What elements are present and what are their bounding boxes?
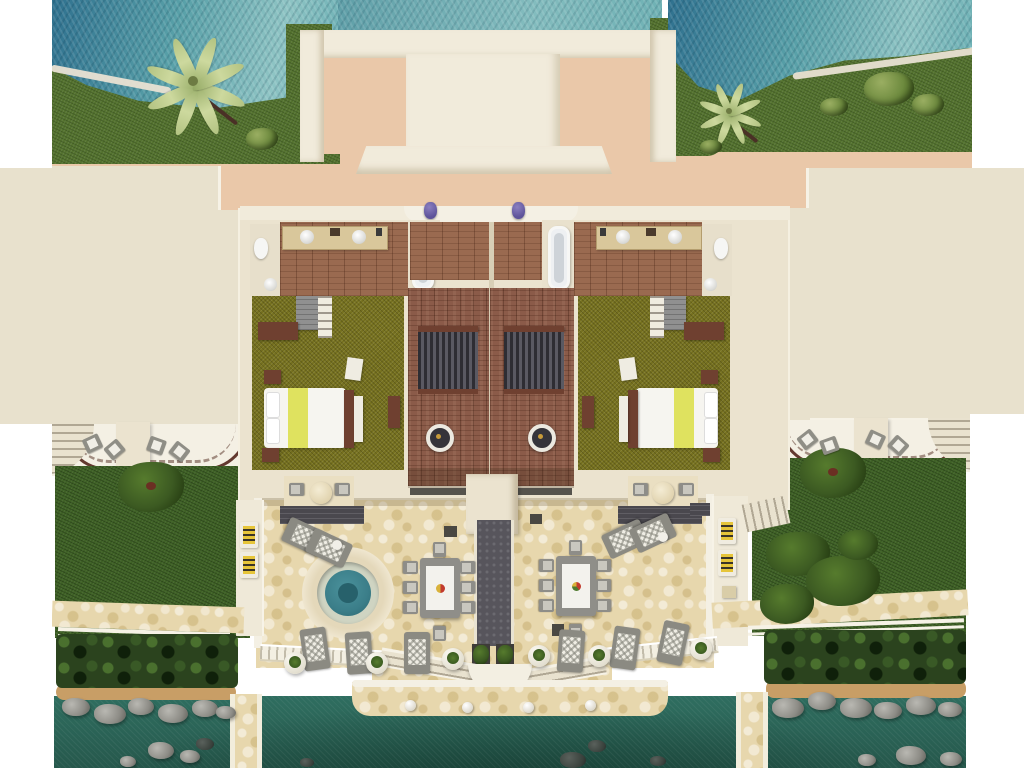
dining-chair: [460, 581, 475, 594]
water-rock: [196, 738, 214, 750]
dining-chair: [569, 540, 582, 555]
luggage-bench-left: [345, 357, 364, 381]
dock-bollard: [462, 702, 473, 713]
vanity-accessory: [376, 228, 382, 236]
bathtub-right: [548, 226, 570, 290]
dock-bollard: [405, 700, 416, 711]
ball-planter: [284, 652, 306, 674]
bed-bench-left: [354, 396, 363, 442]
sun-lounger: [404, 632, 430, 674]
shore-rock-right: [858, 754, 876, 766]
dining-chair: [433, 542, 446, 557]
bed-footboard-left: [344, 390, 354, 448]
bed-yellow-runner-left: [288, 388, 308, 448]
shore-rock-right: [874, 702, 902, 719]
shore-rock-right: [906, 696, 936, 715]
hedge-left: [56, 634, 238, 688]
bed-footboard-right: [628, 390, 638, 448]
water-rock: [650, 756, 666, 766]
shore-rock-right: [940, 752, 962, 766]
dock-pier-right: [736, 692, 768, 768]
shore-rock-left: [158, 704, 188, 723]
dining-chair: [539, 559, 554, 572]
alcove-chair: [289, 483, 304, 496]
dining-chair: [596, 559, 611, 572]
quay: [352, 682, 668, 716]
striped-lounger: [240, 522, 258, 548]
right-walkway-mat: [690, 503, 710, 516]
bed-yellow-runner-right: [674, 388, 694, 448]
closet-shelf-right: [650, 296, 664, 338]
coffee-table-decor: [538, 434, 543, 439]
upper-roof-left-wing: [300, 30, 324, 162]
striped-lounger: [718, 518, 736, 544]
canvas-mask: [972, 0, 1024, 136]
shore-rock-right: [772, 698, 804, 718]
ball-planter: [442, 648, 464, 670]
shore-rock-right: [896, 746, 926, 765]
hedge-right: [764, 630, 966, 684]
shore-rock-left: [94, 704, 126, 724]
dining-chair: [596, 599, 611, 612]
dining-chair: [596, 579, 611, 592]
luggage-bench-right: [619, 357, 638, 381]
dining-chair: [460, 561, 475, 574]
central-walkway: [474, 520, 514, 646]
vanity-accessory: [330, 228, 340, 236]
entry-hall-left: [410, 222, 490, 280]
vanity-sink-right-2: [668, 230, 682, 244]
vanity-sink-left-1: [300, 230, 314, 244]
palm-tree-left-crown: [188, 76, 198, 86]
water-rock: [588, 740, 606, 752]
ball-planter: [528, 645, 550, 667]
shore-rock-right: [938, 702, 962, 717]
shore-rock-left: [128, 698, 154, 715]
vanity-sink-right-1: [616, 230, 630, 244]
vanity-accessory: [646, 228, 656, 236]
lounger-side-table: [658, 532, 668, 542]
entry-plant-pot-left: [424, 202, 437, 219]
walkway-side-table: [722, 586, 736, 598]
courtyard-left: [324, 58, 406, 154]
lawn-plant-center: [828, 468, 838, 476]
bed-bench-right: [619, 396, 628, 442]
nightstand-right-top: [701, 370, 718, 384]
shore-rock-left: [62, 698, 90, 716]
aerial-villa-render: [0, 0, 1024, 768]
console-left: [388, 396, 400, 428]
pedestal-sink-left: [264, 278, 277, 291]
canvas-mask: [0, 424, 52, 768]
slat-canopy-right: [504, 332, 564, 394]
pedestal-sink-right: [704, 278, 717, 291]
upper-roof-right-wing: [650, 30, 676, 162]
bed-pillow: [266, 392, 280, 418]
shore-rock-left: [148, 742, 174, 759]
alcove-chair: [335, 483, 350, 496]
alcove-table-left: [310, 482, 332, 504]
dock-bollard: [585, 700, 596, 711]
shore-rock-left: [180, 750, 200, 763]
terrace-vent: [444, 526, 457, 537]
neighbor-roof-right: [806, 168, 1024, 420]
dining-chair: [539, 599, 554, 612]
dock-bollard: [523, 702, 534, 713]
closet-shelf-left: [318, 296, 332, 338]
terrace-vent: [530, 514, 542, 524]
alcove-chair: [679, 483, 694, 496]
shore-rock-left: [120, 756, 136, 767]
dining-chair: [539, 579, 554, 592]
alcove-chair: [633, 483, 648, 496]
entry-plant-pot-right: [512, 202, 525, 219]
vanity-sink-left-2: [352, 230, 366, 244]
dock-pier-left: [230, 694, 262, 768]
shore-rock-right: [808, 692, 836, 710]
shore-rock-left: [216, 706, 236, 719]
sun-lounger: [557, 629, 586, 673]
dining-centerpiece-left: [436, 584, 445, 593]
toilet-right: [714, 238, 728, 259]
toilet-left: [254, 238, 268, 259]
bed-pillow: [266, 418, 280, 444]
ball-planter: [690, 638, 712, 660]
water-rock: [300, 758, 314, 767]
alcove-table-right: [652, 482, 674, 504]
dresser-right: [684, 322, 724, 340]
nightstand-left-bottom: [262, 448, 279, 462]
dresser-left: [258, 322, 298, 340]
dining-chair: [403, 561, 418, 574]
sea-top-center: [338, 0, 662, 34]
neighbor-roof-left: [0, 166, 221, 430]
nightstand-right-bottom: [703, 448, 720, 462]
striped-lounger: [240, 552, 258, 578]
ball-planter: [588, 645, 610, 667]
slat-canopy-left: [418, 332, 478, 394]
dining-chair: [460, 601, 475, 614]
lounger-side-table: [332, 540, 342, 550]
coffee-table-decor: [436, 434, 441, 439]
courtyard-right: [560, 58, 650, 154]
palm-tree-right-crown: [726, 108, 732, 114]
lawn-plant-center: [146, 482, 156, 490]
dining-chair: [403, 601, 418, 614]
dining-chair: [433, 626, 446, 641]
console-right: [582, 396, 594, 428]
water-rock: [560, 752, 586, 768]
plunge-pool-center: [338, 583, 358, 603]
dining-chair: [403, 581, 418, 594]
nightstand-left-top: [264, 370, 281, 384]
quay-white-edge: [352, 680, 668, 687]
bed-pillow: [704, 392, 718, 418]
striped-lounger: [718, 550, 736, 576]
ball-planter: [366, 652, 388, 674]
upper-roof-bottom-bar: [356, 146, 612, 174]
canvas-mask: [970, 414, 1024, 768]
bed-pillow: [704, 418, 718, 444]
canvas-mask: [0, 0, 52, 168]
vanity-accessory: [600, 228, 606, 236]
shore-rock-left: [192, 700, 218, 717]
shore-rock-right: [840, 698, 872, 718]
dining-centerpiece-right: [572, 582, 581, 591]
